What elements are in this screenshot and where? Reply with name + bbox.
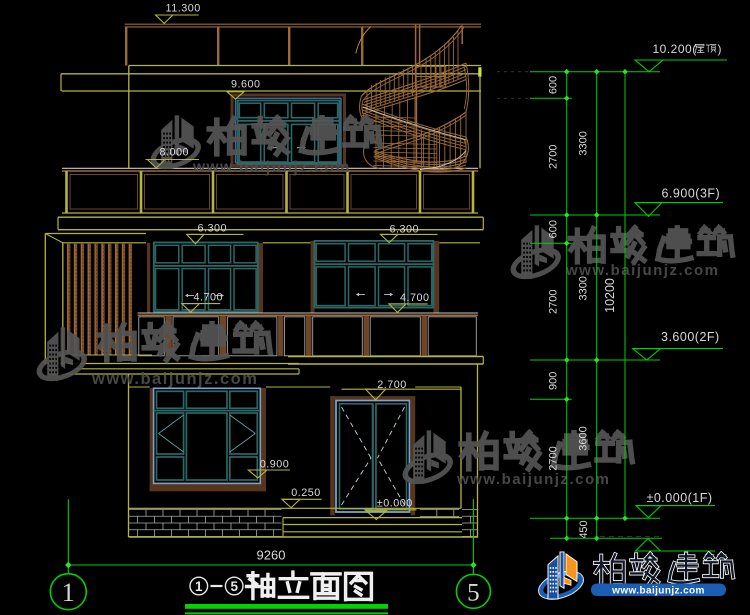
svg-text:3.600(2F): 3.600(2F) (661, 330, 720, 344)
svg-text:6.300: 6.300 (198, 223, 228, 235)
svg-text:2700: 2700 (548, 144, 560, 168)
svg-text:www.baijunjz.com: www.baijunjz.com (192, 159, 351, 176)
svg-text:www.baijunjz.com: www.baijunjz.com (611, 586, 705, 597)
svg-text:3600: 3600 (578, 426, 590, 450)
svg-text:±0.000: ±0.000 (377, 498, 413, 510)
svg-text:9.600: 9.600 (231, 79, 261, 91)
svg-text:www.baijunjz.com: www.baijunjz.com (91, 370, 258, 388)
svg-text:): ) (718, 42, 723, 56)
svg-text:8.000: 8.000 (160, 147, 190, 159)
svg-text:5: 5 (230, 579, 238, 594)
svg-text:±0.000(1F): ±0.000(1F) (647, 491, 713, 505)
svg-text:2700: 2700 (548, 289, 560, 313)
svg-text:4.700: 4.700 (194, 292, 224, 304)
svg-text:600: 600 (548, 76, 560, 94)
svg-text:3300: 3300 (578, 276, 590, 300)
svg-text:www.baijunjz.com: www.baijunjz.com (456, 471, 610, 488)
svg-text:6.900(3F): 6.900(3F) (662, 187, 721, 201)
svg-text:3300: 3300 (578, 131, 590, 155)
svg-text:9260: 9260 (257, 548, 286, 563)
svg-text:2700: 2700 (548, 446, 560, 470)
svg-text:600: 600 (548, 220, 560, 238)
svg-text:1: 1 (62, 578, 75, 607)
svg-text:1: 1 (195, 579, 203, 594)
svg-text:10.200(: 10.200( (653, 42, 697, 56)
svg-text:0.250: 0.250 (291, 487, 321, 499)
svg-text:0.900: 0.900 (260, 459, 290, 471)
svg-text:900: 900 (548, 372, 560, 390)
svg-text:10200: 10200 (603, 278, 617, 313)
svg-text:4.700: 4.700 (400, 292, 430, 304)
svg-text:11.300: 11.300 (166, 3, 201, 15)
svg-text:5: 5 (467, 579, 480, 606)
svg-text:450: 450 (578, 520, 590, 538)
svg-text:6.300: 6.300 (390, 223, 420, 235)
